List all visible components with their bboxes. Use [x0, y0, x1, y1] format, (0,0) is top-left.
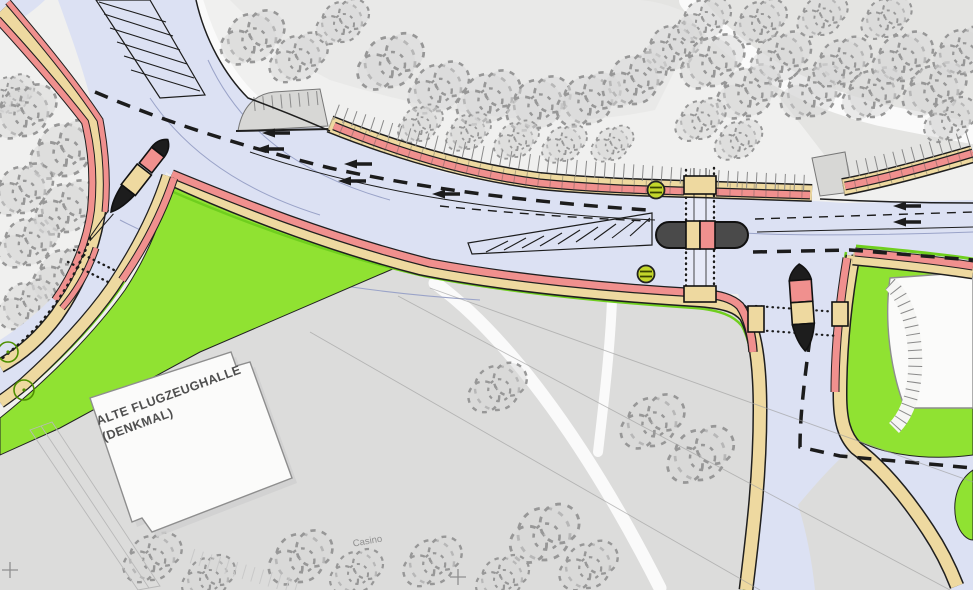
median-island — [656, 221, 748, 249]
traffic-signal-icon — [638, 266, 655, 283]
crossing-patch-west — [748, 306, 764, 332]
island-crossing-bike — [700, 221, 715, 249]
site-plan-map: ALTE FLUGZEUGHALLE (DENKMAL) Casino — [0, 0, 973, 590]
crossing-patch-north — [684, 176, 716, 194]
crossing-patch-east — [832, 302, 848, 326]
crossing-patch-south — [684, 286, 716, 302]
plan-canvas: ALTE FLUGZEUGHALLE (DENKMAL) Casino — [0, 0, 973, 590]
island-crossing-walk — [686, 221, 700, 249]
traffic-signal-icon — [648, 182, 665, 199]
